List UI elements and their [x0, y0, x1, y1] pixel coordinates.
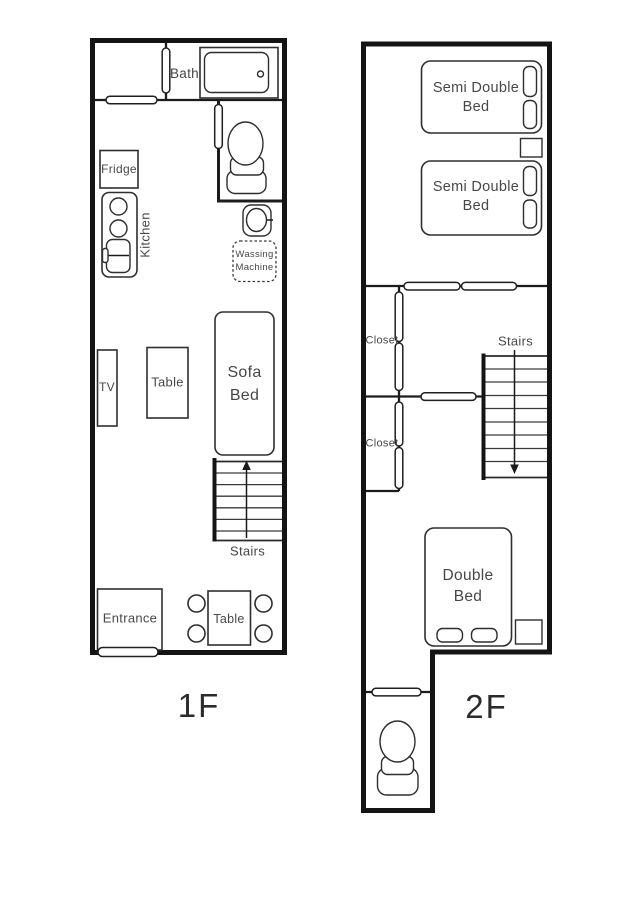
faucet-handle-icon	[103, 249, 109, 263]
chair	[188, 595, 205, 612]
chair	[255, 625, 272, 642]
stairs-down-arrowhead-icon	[510, 465, 519, 475]
door-hall-1f	[106, 96, 157, 104]
stairs-1f	[215, 458, 283, 542]
floor-plan-canvas: Bath Fridge Kitchen Wassing Machine TV T…	[0, 0, 640, 905]
closet-1-label: Closet	[366, 335, 399, 348]
nightstand	[516, 620, 543, 644]
living-table-label: Table	[151, 375, 184, 390]
chair	[188, 625, 205, 642]
tv-label: TV	[99, 381, 115, 395]
semi-double-bed-1-label: Semi Double Bed	[424, 79, 528, 117]
fridge-label: Fridge	[101, 163, 137, 177]
burner-icon	[110, 198, 127, 215]
door-bedroom-slider-2	[462, 282, 517, 290]
sofa-bed-label: Sofa Bed	[221, 361, 269, 407]
bathtub-drain-icon	[258, 71, 264, 77]
burner-icon	[110, 220, 127, 237]
closet-door-2	[395, 343, 403, 391]
nightstand	[521, 139, 543, 158]
chair	[255, 595, 272, 612]
toilet-1f-bowl	[228, 122, 263, 165]
door-bath	[162, 48, 170, 93]
floor-1f-label: 1F	[178, 687, 221, 725]
door-hall-2f	[421, 393, 476, 401]
door-toilet-1f	[215, 105, 223, 149]
washing-machine-label: Wassing Machine	[228, 248, 282, 274]
door-bedroom-slider-1	[404, 282, 460, 290]
floor-2f	[364, 44, 550, 811]
toilet-2f-bowl	[380, 721, 415, 762]
pillow	[472, 629, 498, 643]
bath-label: Bath	[170, 66, 199, 82]
floor-plan-drawing	[0, 0, 640, 905]
door-toilet-2f	[372, 688, 421, 696]
floor-1f	[93, 41, 285, 657]
door-entrance	[98, 648, 158, 657]
double-bed-label: Double Bed	[435, 565, 501, 607]
stairs-2f-label: Stairs	[498, 334, 533, 349]
closet-door-4	[395, 448, 403, 489]
stairs-2f	[484, 350, 548, 480]
washbasin-bowl	[247, 209, 267, 232]
kitchen-label: Kitchen	[139, 212, 154, 257]
stairs-1f-label: Stairs	[230, 544, 265, 559]
closet-2-label: Closet	[366, 437, 399, 450]
pillow	[437, 629, 463, 643]
entrance-label: Entrance	[103, 612, 157, 627]
semi-double-bed-2-label: Semi Double Bed	[424, 178, 528, 216]
floor-2f-label: 2F	[465, 688, 508, 726]
dining-table-label: Table	[213, 611, 244, 625]
